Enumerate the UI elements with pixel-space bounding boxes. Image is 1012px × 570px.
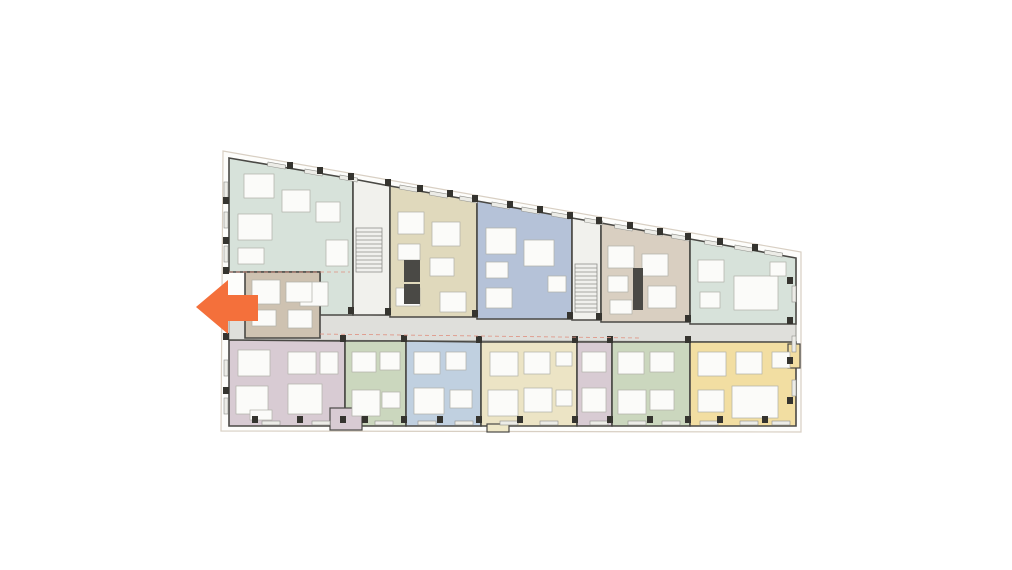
window	[224, 398, 228, 414]
room	[524, 388, 552, 412]
column	[297, 416, 303, 423]
room	[316, 202, 340, 222]
room	[440, 292, 466, 312]
room	[244, 174, 274, 198]
column	[348, 173, 354, 180]
room	[382, 392, 400, 408]
column	[362, 416, 368, 423]
floor-plan-canvas	[0, 0, 1012, 570]
column	[685, 336, 691, 343]
room	[608, 276, 628, 292]
column	[567, 312, 573, 319]
window	[455, 421, 473, 425]
room	[490, 352, 518, 376]
column	[647, 416, 653, 423]
room	[608, 246, 634, 268]
room	[700, 292, 720, 308]
room	[486, 228, 516, 254]
column	[627, 222, 633, 229]
window	[312, 421, 330, 425]
window	[792, 286, 796, 302]
column	[252, 416, 258, 423]
room	[770, 262, 786, 276]
window	[224, 182, 228, 198]
column	[340, 416, 346, 423]
room	[582, 352, 606, 372]
column	[317, 167, 323, 174]
column	[476, 336, 482, 343]
window	[224, 246, 228, 262]
room	[734, 276, 778, 310]
window	[500, 421, 518, 425]
room	[648, 286, 676, 308]
window	[792, 380, 796, 396]
column	[476, 416, 482, 423]
column	[348, 307, 354, 314]
room	[326, 240, 348, 266]
room	[238, 350, 270, 376]
room	[556, 390, 572, 406]
room	[610, 300, 632, 314]
room	[450, 390, 472, 408]
column	[385, 179, 391, 186]
column	[685, 416, 691, 423]
room	[582, 388, 606, 412]
column	[607, 336, 613, 343]
column	[596, 313, 602, 320]
column	[223, 197, 229, 204]
room	[650, 352, 674, 372]
room	[548, 276, 566, 292]
room	[736, 352, 762, 374]
room	[288, 352, 316, 374]
column	[537, 206, 543, 213]
column	[417, 185, 423, 192]
column	[717, 238, 723, 245]
window	[590, 421, 608, 425]
column	[223, 387, 229, 394]
column	[787, 357, 793, 364]
column	[517, 416, 523, 423]
room	[288, 384, 322, 414]
room	[618, 352, 644, 374]
column	[507, 201, 513, 208]
column	[717, 416, 723, 423]
room	[414, 388, 444, 414]
column	[685, 233, 691, 240]
room	[524, 240, 554, 266]
column	[287, 162, 293, 169]
window	[772, 421, 790, 425]
column	[385, 308, 391, 315]
room	[320, 352, 338, 374]
room	[380, 352, 400, 370]
room	[486, 262, 508, 278]
column	[401, 335, 407, 342]
column	[401, 416, 407, 423]
column	[607, 416, 613, 423]
window	[418, 421, 436, 425]
column	[787, 317, 793, 324]
window	[224, 360, 228, 376]
column	[340, 335, 346, 342]
column	[787, 277, 793, 284]
room	[556, 352, 572, 366]
room	[650, 390, 674, 410]
room	[446, 352, 466, 370]
room	[642, 254, 668, 276]
room	[732, 386, 778, 418]
column	[447, 190, 453, 197]
room	[352, 390, 380, 416]
room	[282, 190, 310, 212]
room	[698, 260, 724, 282]
window	[740, 421, 758, 425]
room	[414, 352, 440, 374]
column	[223, 237, 229, 244]
window	[628, 421, 646, 425]
room	[430, 258, 454, 276]
column	[596, 217, 602, 224]
room	[698, 390, 724, 412]
column	[752, 244, 758, 251]
room	[486, 288, 512, 308]
column	[762, 416, 768, 423]
room	[286, 282, 312, 302]
room	[398, 212, 424, 234]
room	[618, 390, 646, 414]
window	[792, 336, 796, 352]
column	[567, 212, 573, 219]
column	[472, 195, 478, 202]
column	[657, 228, 663, 235]
elevator-0	[404, 260, 420, 282]
room	[524, 352, 550, 374]
elevator-2	[633, 268, 643, 310]
column	[787, 397, 793, 404]
column	[437, 416, 443, 423]
column	[572, 416, 578, 423]
floor-plan-svg	[0, 0, 1012, 570]
column	[472, 310, 478, 317]
room	[432, 222, 460, 246]
window	[700, 421, 718, 425]
room	[288, 310, 312, 328]
room	[238, 214, 272, 240]
room	[698, 352, 726, 376]
column	[223, 267, 229, 274]
stair-0	[356, 228, 382, 272]
window	[375, 421, 393, 425]
room	[352, 352, 376, 372]
room	[238, 248, 264, 264]
window	[262, 421, 280, 425]
window	[540, 421, 558, 425]
column	[685, 315, 691, 322]
column	[223, 333, 229, 340]
window	[662, 421, 680, 425]
room	[398, 244, 420, 260]
room	[488, 390, 518, 416]
elevator-1	[404, 284, 420, 304]
window	[224, 212, 228, 228]
